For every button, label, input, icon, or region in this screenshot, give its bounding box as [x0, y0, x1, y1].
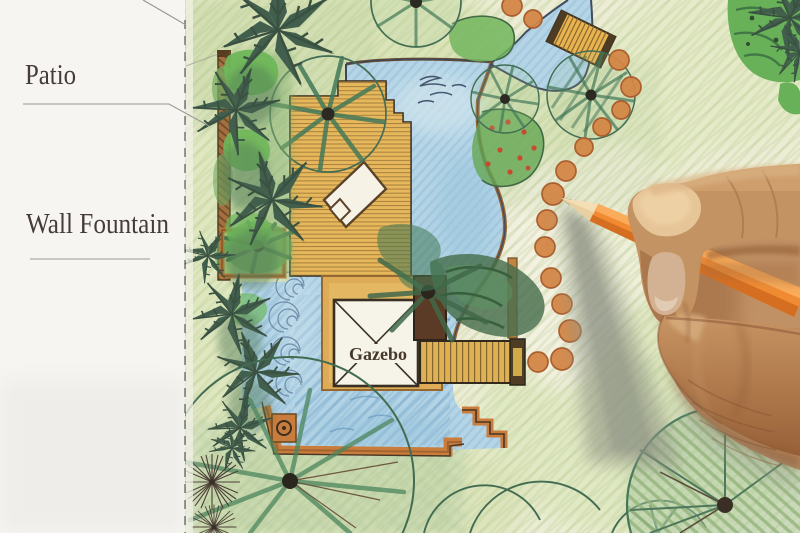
svg-text:Patio: Patio — [25, 60, 76, 91]
svg-text:Wall Fountain: Wall Fountain — [26, 209, 169, 240]
